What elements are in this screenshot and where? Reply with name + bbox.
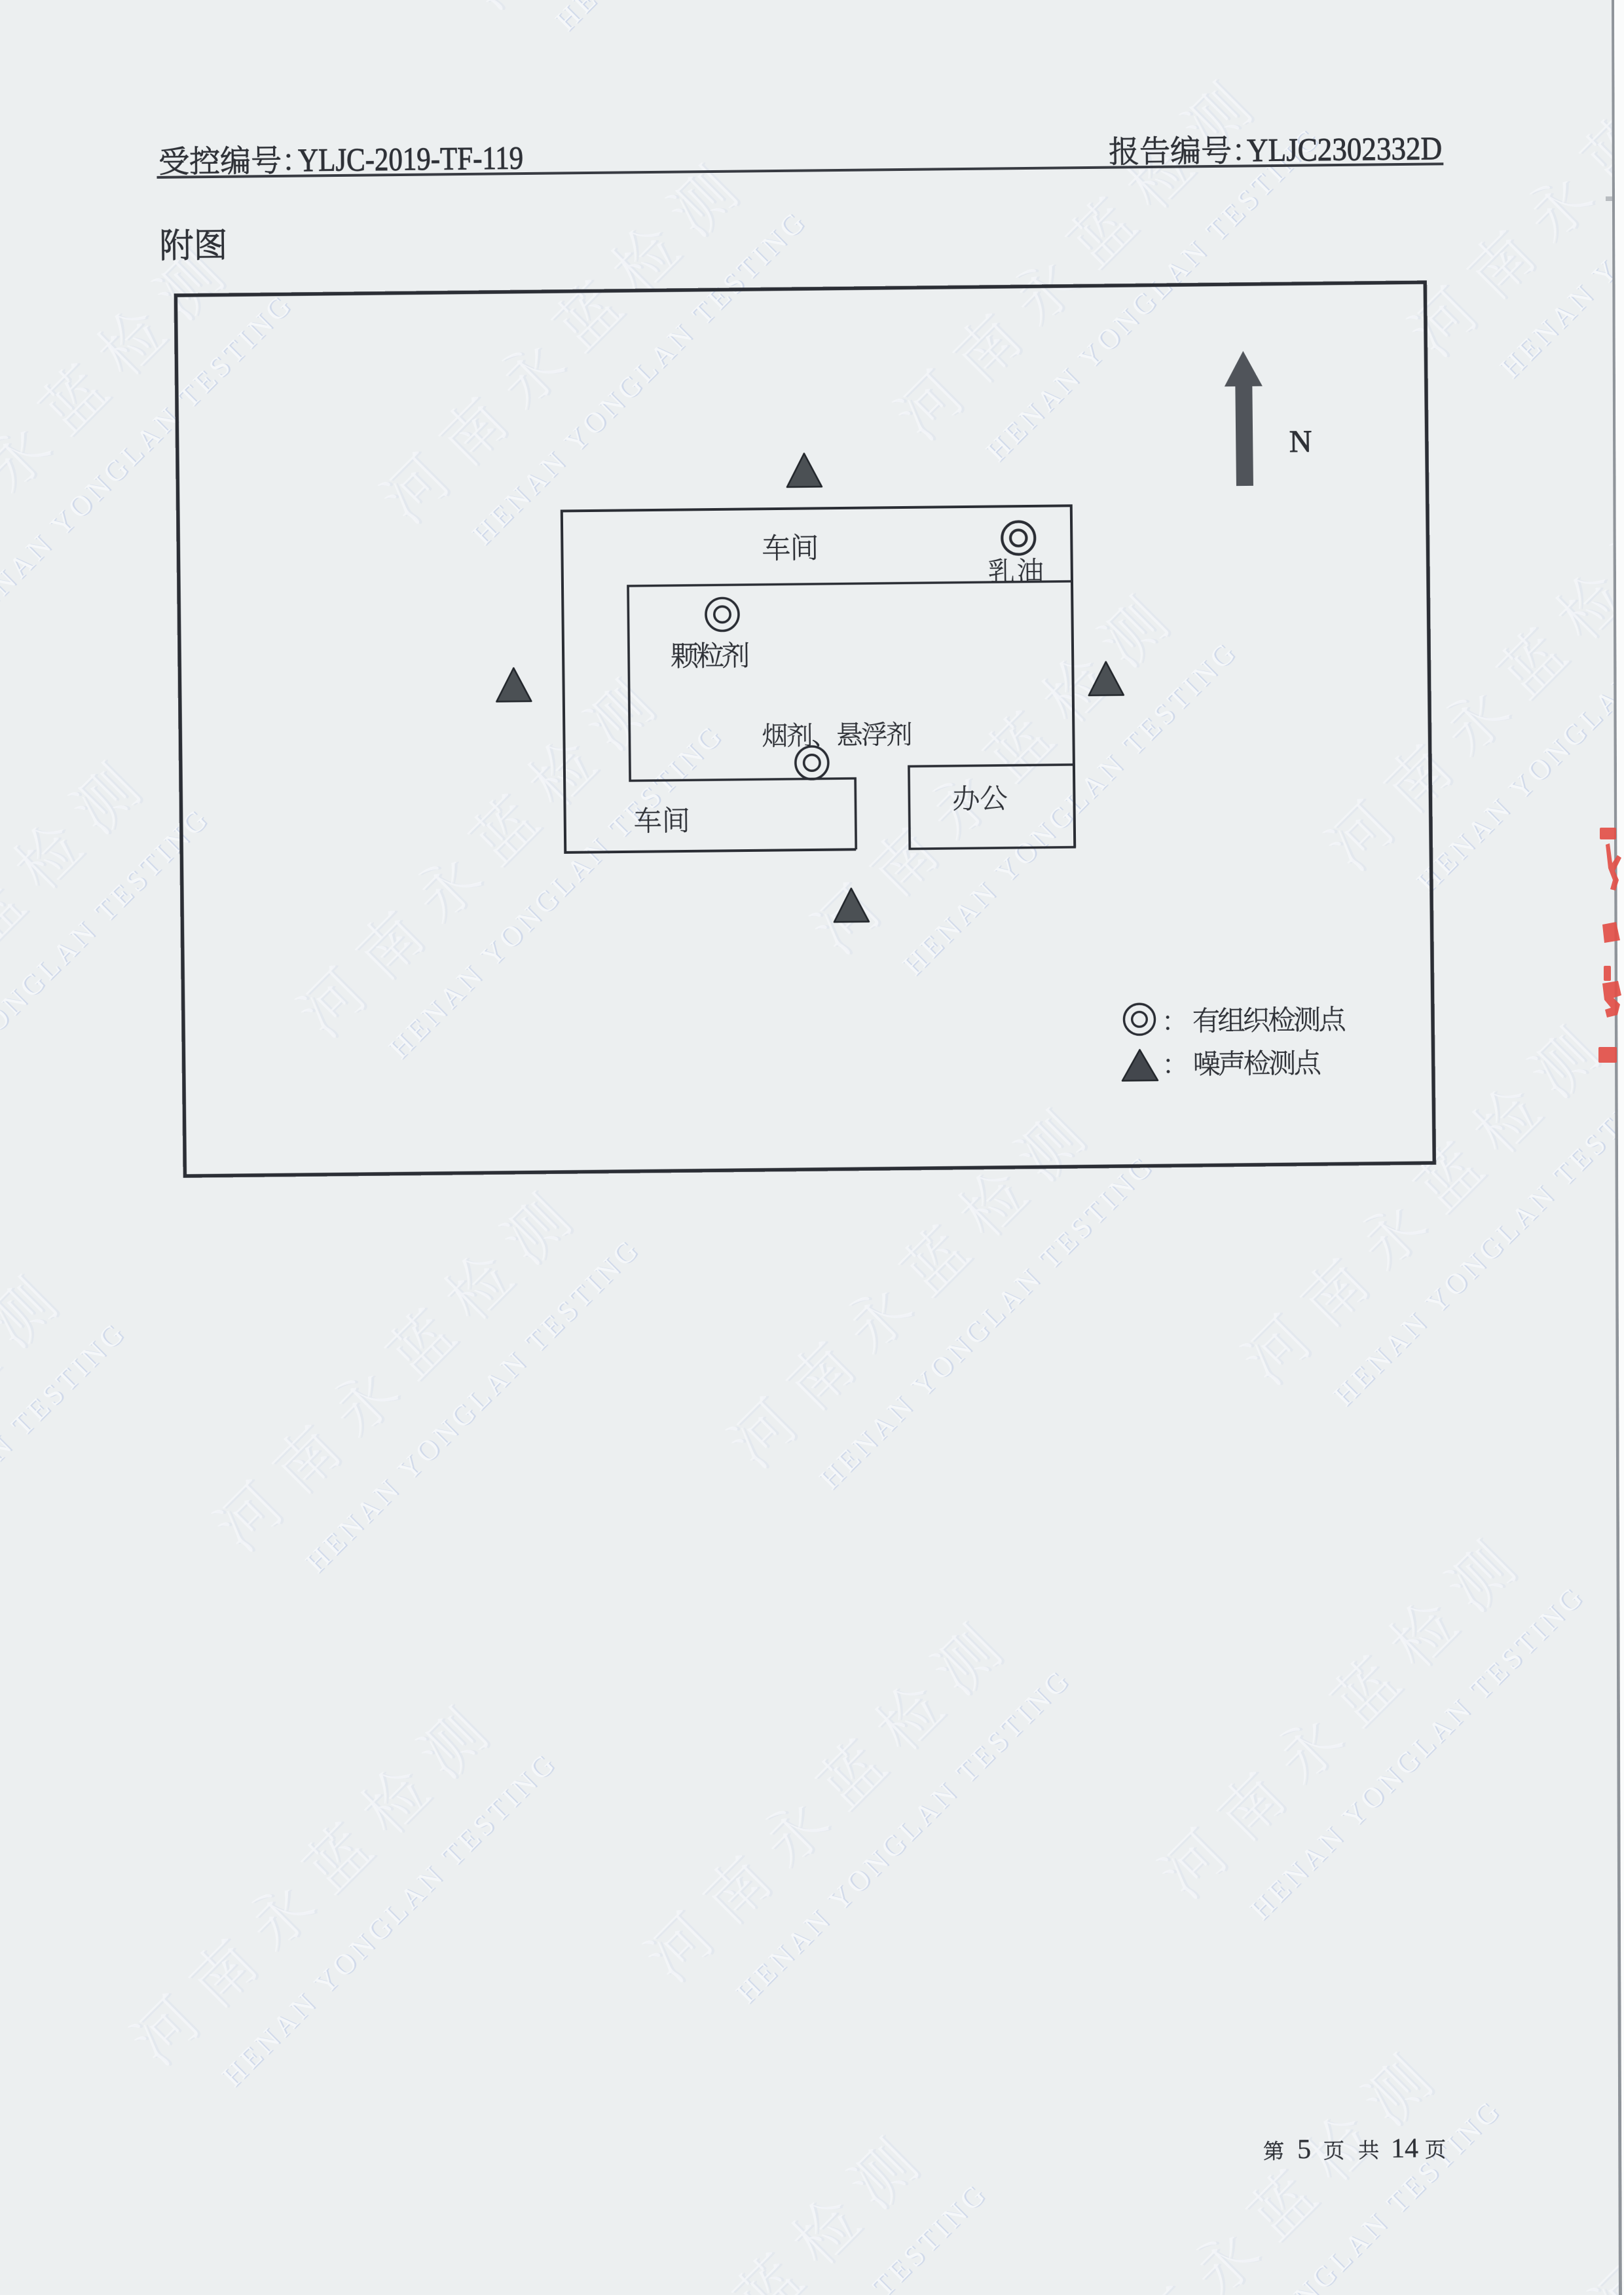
svg-text:YLJC-2019-TF-119: YLJC-2019-TF-119 [298, 139, 524, 179]
svg-text:5: 5 [1297, 2135, 1311, 2165]
svg-text:N: N [1289, 424, 1312, 459]
svg-text:14: 14 [1391, 2133, 1418, 2163]
svg-text:YLJC2302332D: YLJC2302332D [1247, 130, 1443, 168]
